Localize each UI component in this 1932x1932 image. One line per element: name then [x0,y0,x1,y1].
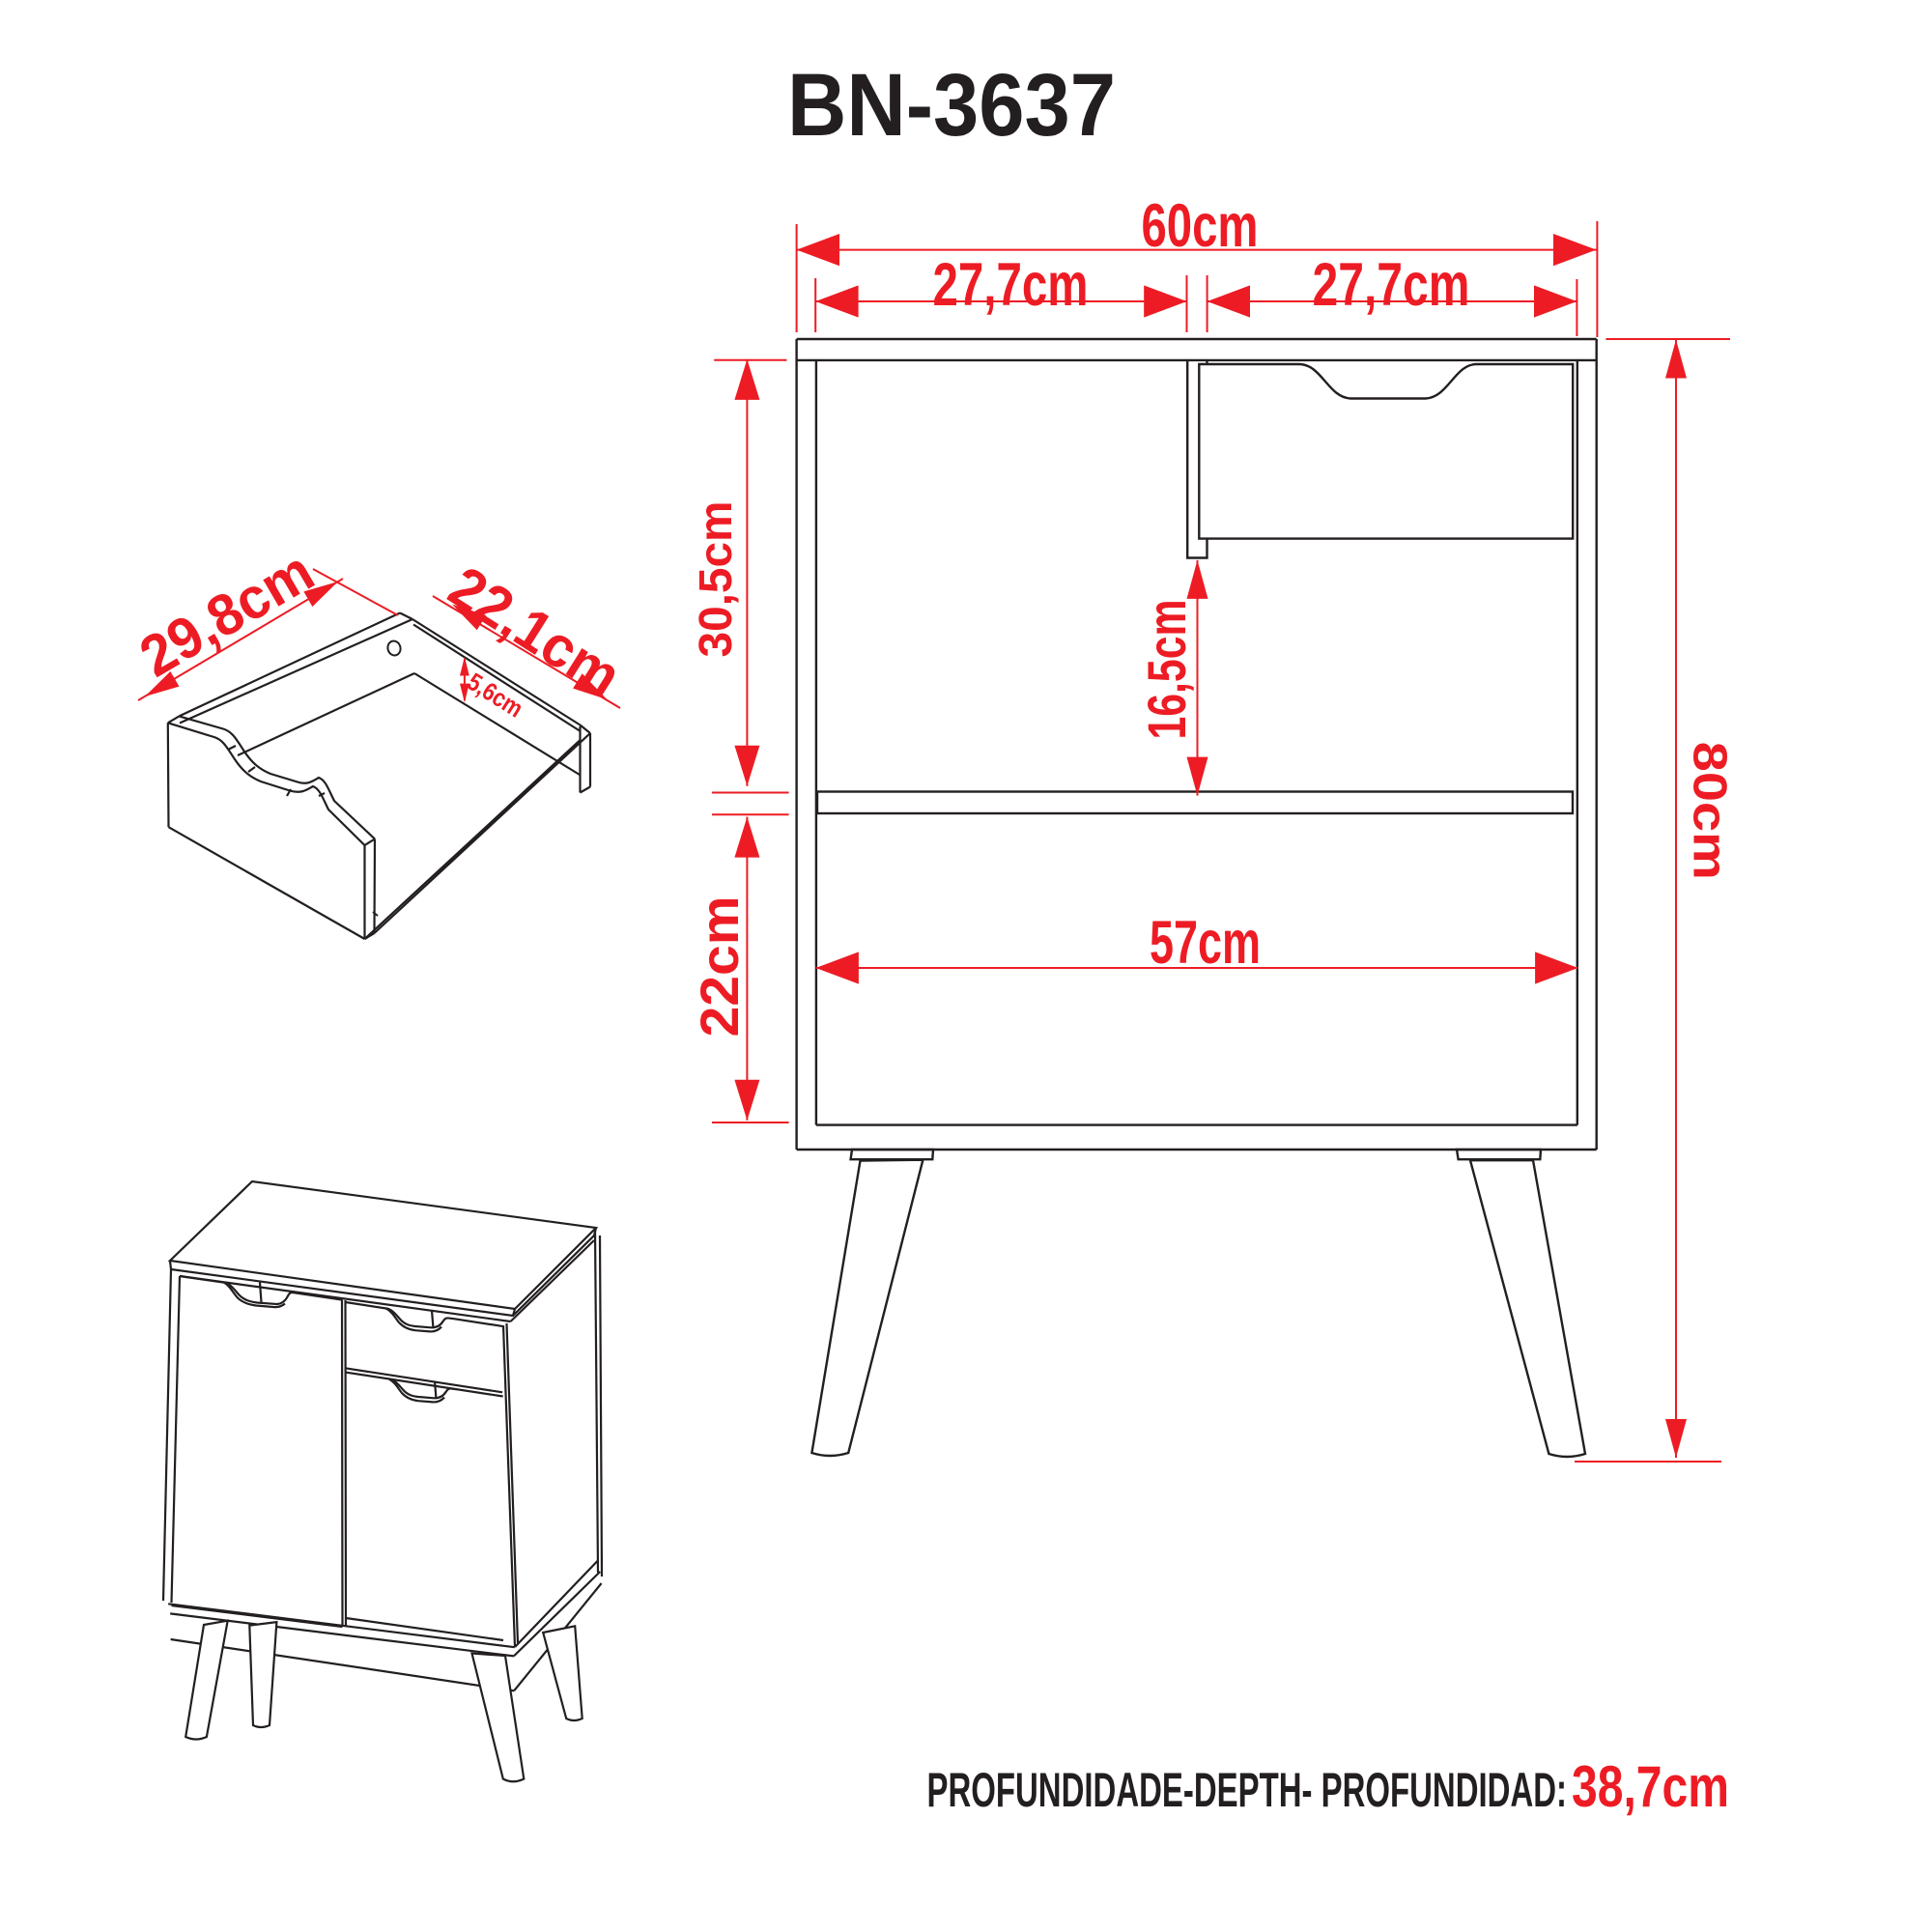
svg-text:29,8cm: 29,8cm [129,538,325,689]
svg-text:30,5cm: 30,5cm [691,501,742,658]
svg-text:27,7cm: 27,7cm [933,251,1089,319]
svg-text:22cm: 22cm [689,896,750,1037]
svg-text:16,5cm: 16,5cm [1136,600,1197,740]
svg-text:38,7cm: 38,7cm [1572,1754,1729,1819]
svg-text:PROFUNDIDADE-DEPTH- PROFUNDIDA: PROFUNDIDADE-DEPTH- PROFUNDIDAD: [927,1763,1568,1817]
svg-text:60cm: 60cm [1142,192,1259,260]
svg-text:BN-3637: BN-3637 [787,56,1116,155]
svg-text:27,7cm: 27,7cm [1313,251,1470,319]
svg-text:80cm: 80cm [1684,742,1736,880]
svg-text:57cm: 57cm [1150,909,1261,977]
svg-text:5,6cm: 5,6cm [463,667,528,723]
